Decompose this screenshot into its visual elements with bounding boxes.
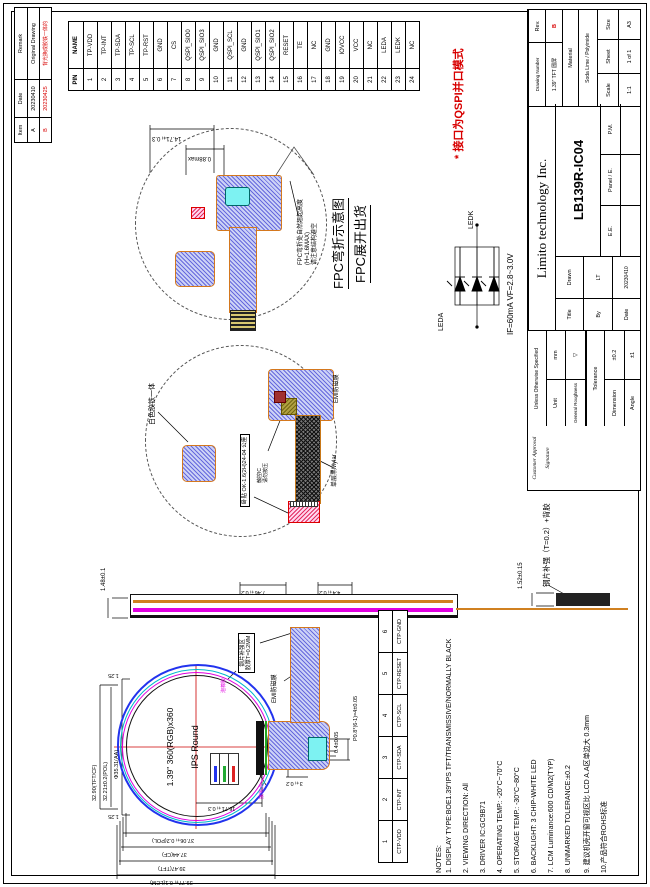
edge-offset-dim-right: 1.25 — [108, 672, 119, 678]
pin-table-row: 2 TP-INT — [97, 22, 111, 90]
pin-number: 6 — [153, 69, 167, 90]
pin-table-row: 24 NC — [405, 22, 419, 90]
title-block-center: Limito technology Inc. Title Drawn By LT… — [528, 107, 640, 331]
pad-width-dim: 0.4±0.05 — [334, 732, 340, 753]
touch-ic-note: 触控IC 请勿按压 — [258, 463, 270, 483]
thickness-dim-top: 1.48±0.1 — [101, 568, 108, 591]
pin-name: TP-VDD — [83, 22, 97, 69]
ctp-pin-number: 3 — [379, 737, 392, 779]
ctp-name-row: CTP-VDDCTP-INTCTP-SDACTP-SCLCTP-RESETCTP… — [392, 611, 407, 862]
pin-number: 7 — [167, 69, 181, 90]
pin-table-row: 10 GND — [209, 22, 223, 90]
drawing-number-label: Drawing Number — [528, 43, 546, 107]
pin-table-row: 22 LEDA — [377, 22, 391, 90]
pin-table-row: 15 RESET — [279, 22, 293, 90]
pin-name: VCC — [349, 22, 363, 69]
mesh-shield-strip — [295, 415, 321, 504]
note-item: 5. STORAGE TEMP.: -30°C~80°C — [514, 639, 531, 873]
stiffener-note: 钢片补强（T=0.2）+背胶 — [543, 503, 552, 587]
connector-offset-dim: 3±0.2 — [286, 780, 303, 786]
ctp-pin-name: CTP-GND — [392, 611, 407, 653]
pin-table-row: 7 CS — [167, 22, 181, 90]
drawing-canvas: Item Date Remark A 20230410 Original Dra… — [0, 0, 650, 887]
pin-table-row: 11 QSPI_SCL — [223, 22, 237, 90]
rev-b-date: 20230425 — [39, 80, 51, 118]
pin-table-row: 19 IOVCC — [335, 22, 349, 90]
revision-col-remark: Remark — [15, 8, 27, 80]
pin-number: 4 — [125, 69, 139, 90]
side-view-stiffener — [556, 593, 610, 606]
pin-table-row: 16 TE — [293, 22, 307, 90]
rev-a-remark: Original Drawing — [27, 8, 39, 80]
pm-sign-label: P.M. — [600, 104, 621, 155]
ctp-pin-row: 123456 — [379, 611, 392, 862]
emi-film-label: EMI防磁膜 — [272, 674, 279, 703]
pin-name: QSPI_SIO2 — [265, 22, 279, 69]
pin-number: 5 — [139, 69, 153, 90]
tft-diameter-dim: 39.47(TFT) — [158, 865, 186, 871]
note-item: 1. DISPLAY TYPE:BOE1.39"IPS TFT/TRANSMIS… — [446, 639, 463, 873]
ground-point-label: 接地点 — [260, 784, 266, 799]
panel-sign-label: Panel / E. — [600, 155, 621, 206]
pin-name: QSPI_SIO1 — [251, 22, 265, 69]
connector-type-label: 卧贴 OK-1.6(2H)24-04 公座 — [240, 434, 250, 507]
pin-table-row: 18 GND — [321, 22, 335, 90]
material-label: Material — [562, 10, 578, 107]
pin-name: GND — [209, 22, 223, 69]
ctp-pin-name: CTP-INT — [392, 779, 407, 821]
note-item: 3. DRIVER IC:GC9B71 — [480, 639, 497, 873]
scale-value: 1:1 — [618, 74, 641, 107]
touch-ic-note-line2: 请勿按压 — [264, 463, 270, 483]
note-item: 9. 建议机壳开窗可视区比 LCD A.A区单边大 0.3mm — [582, 639, 599, 873]
pin-name: GND — [153, 22, 167, 69]
pin-number: 16 — [293, 69, 307, 90]
pin-table-row: 5 TP-RST — [139, 22, 153, 90]
fpc-bend-note: FPC弯折处自然翘起高度 (H≈1.6MAX) 请注意结构避空 — [298, 165, 319, 265]
notes-list: 1. DISPLAY TYPE:BOE1.39"IPS TFT/TRANSMIS… — [446, 639, 616, 873]
driver-ic-pad — [225, 187, 250, 206]
edge-offset-dim-left: 1.25 — [108, 813, 119, 819]
foam-block — [274, 391, 286, 403]
dimension-tol-value: ±0.2 — [605, 331, 624, 380]
pin-table-row: 9 QSPI_SIO3 — [195, 22, 209, 90]
panel-type-text: IPS Round — [190, 682, 200, 812]
sheet-label: Sheet — [597, 40, 619, 74]
pin-table-row: 3 TP-SDA — [111, 22, 125, 90]
pin-table-row: 21 NC — [363, 22, 377, 90]
fpc-step-dim: 0.88max — [188, 154, 211, 161]
date-label: Date — [612, 299, 641, 331]
ctp-pin-number: 6 — [379, 611, 392, 653]
rev-a-date: 20230410 — [27, 80, 39, 118]
pin-name: QSPI_SIO3 — [195, 22, 209, 69]
foam-point-label: 泡棉胶 — [222, 678, 228, 693]
note-item: 10.产品符合ROHS标准 — [599, 639, 616, 873]
pin-name: QSPI_SIO0 — [181, 22, 195, 69]
ctp-pin-number: 5 — [379, 653, 392, 695]
ctp-pin-number: 1 — [379, 821, 392, 862]
ctp-pin-number: 4 — [379, 695, 392, 737]
pm-sign-space — [620, 104, 641, 155]
customer-approval-box: Customer Approval Signature — [528, 426, 640, 490]
ctp-connector-pad — [308, 737, 327, 761]
note-item: 7. LCM Luminance:600 CD/M2(TYP) — [548, 639, 565, 873]
note-item: 4. OPERATING TEMP.: -20°C~70°C — [497, 639, 514, 873]
pin-table-rows: 1 TP-VDD 2 TP-INT 3 TP-SDA 4 TP-SCL 5 TP… — [83, 22, 419, 90]
pin-name: LEDK — [391, 22, 405, 69]
size-value: A3 — [618, 10, 641, 40]
backlight-layer — [133, 600, 453, 603]
stiffener-zone-line2: 胶厚T=0.2MM — [246, 636, 252, 670]
rev-label: Rev. — [528, 10, 546, 43]
connector-contacts — [290, 501, 318, 507]
roughness-symbol-icon: ▽ — [566, 331, 585, 380]
pin-number: 1 — [83, 69, 97, 90]
fpc-width-dim: 14.71±0.3 — [152, 134, 181, 141]
drawn-date-value: 20230410 — [612, 257, 641, 299]
angle-tol-value: ±1 — [625, 331, 640, 380]
pin-name: TP-INT — [97, 22, 111, 69]
pol-width-dim: 32.21±0.2(POL) — [103, 762, 109, 801]
tolerance-label: Tolerance — [586, 331, 604, 426]
pin-number: 9 — [195, 69, 209, 90]
fpc-bend-note-line2: (H≈1.6MAX) — [305, 165, 312, 265]
pin-number: 10 — [209, 69, 223, 90]
led-cathode-label: LEDK — [468, 211, 476, 229]
pin-table-row: 6 GND — [153, 22, 167, 90]
pin-name: TP-SCL — [125, 22, 139, 69]
pin-number: 8 — [181, 69, 195, 90]
revision-col-item: Item — [15, 118, 27, 142]
pin-name: TE — [293, 22, 307, 69]
pin-name: RESET — [279, 22, 293, 69]
pin-header: PIN — [69, 69, 83, 90]
size-label: Size — [597, 10, 619, 40]
pin-table-row: 17 NC — [307, 22, 321, 90]
fpc-tail — [229, 227, 257, 313]
note-item: 6. BACKLIGHT: 3 CHIP-WHITE LED — [531, 639, 548, 873]
bonding-contact-bar — [256, 721, 264, 775]
fpc-connector-fingers — [230, 310, 256, 331]
pin-number: 11 — [223, 69, 237, 90]
pin-number: 24 — [405, 69, 419, 90]
pin-number: 23 — [391, 69, 405, 90]
pin-name: TP-SDA — [111, 22, 125, 69]
ctp-pin-name: CTP-VDD — [392, 821, 407, 862]
rev-a-item: A — [27, 118, 39, 142]
revision-col-date: Date — [15, 80, 27, 118]
led-anode-label: LEDA — [438, 313, 446, 331]
pin-name: NC — [405, 22, 419, 69]
pin-number: 19 — [335, 69, 349, 90]
resolution-text: 1.39" 360(RGB)x360 — [166, 682, 176, 812]
revision-header-row: Item Date Remark — [15, 8, 27, 142]
fpc-bend-note-line1: FPC弯折处自然翘起高度 — [298, 165, 305, 265]
tolerance-box: Unless Otherwise Specified Unit mm Gener… — [528, 331, 640, 426]
note-item: 8. UNMARKED TOLERANCE:±0.2 — [565, 639, 582, 873]
pin-table-header: PIN NAME — [69, 22, 83, 90]
pin-name: GND — [321, 22, 335, 69]
pin-number: 2 — [97, 69, 111, 90]
ctp-pin-name: CTP-SCL — [392, 695, 407, 737]
pin-table-row: 23 LEDK — [391, 22, 405, 90]
model-number: LB139R-IC04 — [555, 104, 600, 257]
component-mark — [191, 207, 205, 219]
ctp-pin-table: 123456 CTP-VDDCTP-INTCTP-SDACTP-SCLCTP-R… — [378, 610, 408, 863]
segment-dim-1: 7.46±0.2 — [241, 589, 265, 595]
angle-tol-label: Angle — [625, 380, 640, 426]
pin-number: 14 — [265, 69, 279, 90]
title-label: Title — [555, 299, 584, 331]
led-spec: IF=60mA VF=2.8~3.0V — [506, 253, 515, 335]
qspi-interface-note: * 接口为QSPI并口模式 — [453, 48, 466, 159]
datasheet-screenshot: { "colors": {"accent_red": "#d80000", "f… — [0, 0, 650, 887]
pin-name: NC — [363, 22, 377, 69]
revision-table: Item Date Remark A 20230410 Original Dra… — [14, 7, 52, 143]
pin-number: 20 — [349, 69, 363, 90]
pin-table-row: 1 TP-VDD — [83, 22, 97, 90]
drawn-by-value: LT — [583, 257, 613, 299]
backlight-type-label: 白色胶铁一体 — [149, 383, 157, 425]
title-block-right: Drawing Number Rev. 1.39" TFT 圆屏 B Mater… — [528, 10, 640, 107]
pin-table-row: 20 VCC — [349, 22, 363, 90]
front-fpc-tail — [290, 627, 320, 723]
drawing-number-value: 1.39" TFT 圆屏 — [545, 43, 563, 107]
pin-name: LEDA — [377, 22, 391, 69]
note-item: 2. VIEWING DIRECTION: All — [463, 639, 480, 873]
bonding-green-strip — [265, 721, 267, 775]
segment-dim-2: 4.4±0.2 — [319, 589, 340, 595]
backlight-fpc-tab — [175, 251, 215, 287]
pin-number: 15 — [279, 69, 293, 90]
aa-diameter-dim: Φ35.31(AA) — [114, 750, 120, 779]
ctp-pin-name: CTP-RESET — [392, 653, 407, 695]
ee-sign-space — [620, 206, 641, 257]
stiffener-zone-label: 钢片补强区 胶厚T=0.2MM — [238, 633, 255, 673]
pin-name: NC — [307, 22, 321, 69]
pin-name: IOVCC — [335, 22, 349, 69]
by-label: By — [583, 299, 613, 331]
pin-table-row: 4 TP-SCL — [125, 22, 139, 90]
customer-approval-line1: Customer Approval — [528, 426, 542, 490]
sheet-value: 1 of 1 — [618, 40, 641, 74]
pin-number: 18 — [321, 69, 335, 90]
pin-table: PIN NAME 1 TP-VDD 2 TP-INT 3 TP-SDA 4 TP… — [68, 21, 420, 91]
caption-fpc-bend: FPC弯折示意图 — [332, 198, 349, 289]
material-value: Soda Lime / Polyimide — [578, 10, 597, 107]
revision-row-b: B 20230425 背光换成胶铁一体的 — [39, 8, 51, 142]
side-view-fpc-line — [456, 608, 628, 610]
ctp-pin-name: CTP-SDA — [392, 737, 407, 779]
pin-table-row: 14 QSPI_SIO2 — [265, 22, 279, 90]
company-name: Limito technology Inc. — [528, 107, 555, 331]
drawn-label: Drawn — [555, 257, 584, 299]
customer-signature-space — [554, 426, 640, 490]
outline-color-legend — [210, 753, 239, 785]
pin-table-row: 8 QSPI_SIO0 — [181, 22, 195, 90]
legend-row-aa — [220, 754, 229, 784]
caption-fpc-ship: FPC展开出货 — [354, 205, 371, 283]
pin-name: GND — [237, 22, 251, 69]
revision-row-a: A 20230410 Original Drawing — [27, 8, 39, 142]
dimension-tol-label: Dimension — [605, 380, 624, 426]
pin-name: QSPI_SCL — [223, 22, 237, 69]
fpc-bend-note-line3: 请注意结构避空 — [312, 165, 319, 265]
pin-number: 17 — [307, 69, 321, 90]
panel-sign-space — [620, 155, 641, 206]
pin-number: 3 — [111, 69, 125, 90]
roughness-label: General Roughness — [566, 380, 585, 426]
unit-value: mm — [547, 331, 565, 380]
rev-b-remark: 背光换成胶铁一体的 — [39, 8, 51, 80]
pin-table-row: 13 QSPI_SIO1 — [251, 22, 265, 90]
pin-table-row: 12 GND — [237, 22, 251, 90]
customer-approval-line2: Signature — [542, 426, 554, 490]
title-block: Customer Approval Signature Unless Other… — [527, 9, 641, 491]
rev-value: B — [545, 10, 563, 43]
legend-row-tft — [229, 754, 237, 784]
pin-number: 13 — [251, 69, 265, 90]
notes-section: NOTES: 1. DISPLAY TYPE:BOE1.39"IPS TFT/T… — [434, 639, 616, 873]
pin-number: 12 — [237, 69, 251, 90]
ctp-pin-number: 2 — [379, 779, 392, 821]
ee-sign-label: E.E. — [600, 206, 621, 257]
mylar-label: 单层黑Mylar — [332, 454, 339, 487]
rev-b-item: B — [39, 118, 51, 142]
lcm-diameter-dim: 39.77±0.1(LCM) — [150, 879, 193, 885]
legend-row-lcm — [211, 754, 220, 784]
pin-pitch-dim: P0.8*(6-1)=4±0.05 — [353, 696, 359, 741]
tftcf-width-dim: 32.90(TFT/CF) — [92, 765, 98, 801]
pin-name: TP-RST — [139, 22, 153, 69]
fpc-length-dim: 16.71±0.3 — [208, 805, 235, 811]
thickness-dim-bottom: 1.52±0.15 — [518, 562, 525, 589]
pin-number: 21 — [363, 69, 377, 90]
pin-number: 22 — [377, 69, 391, 90]
unless-otherwise-label: Unless Otherwise Specified — [528, 331, 546, 426]
pin-name: CS — [167, 22, 181, 69]
name-header: NAME — [69, 22, 83, 69]
unit-label: Unit — [547, 380, 565, 426]
notes-header: NOTES: — [434, 639, 443, 873]
backlight-fpc-tab-2 — [182, 445, 216, 482]
cf-diameter-dim: 37.44(CF) — [162, 851, 187, 857]
side-view-body — [130, 594, 458, 618]
scale-label: Scale — [597, 74, 619, 107]
emi-film-label-2: EMI防磁膜 — [334, 374, 341, 403]
pol-diameter-dim: 37.06±0.2(POL) — [152, 837, 194, 843]
